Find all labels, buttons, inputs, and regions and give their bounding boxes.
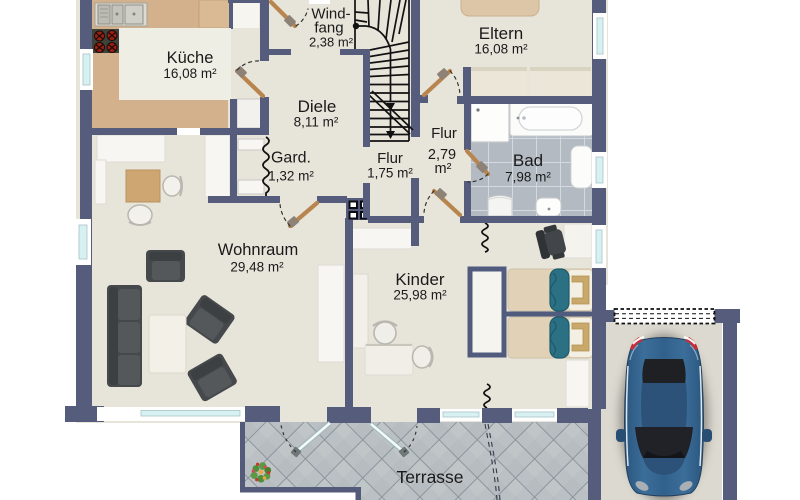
svg-text:1,75 m²: 1,75 m² xyxy=(367,166,413,181)
svg-text:Diele: Diele xyxy=(298,97,337,116)
svg-text:16,08 m²: 16,08 m² xyxy=(163,66,217,81)
svg-text:Terrasse: Terrasse xyxy=(396,467,463,487)
svg-text:8,11 m²: 8,11 m² xyxy=(294,115,339,130)
svg-text:Wohnraum: Wohnraum xyxy=(218,241,298,259)
svg-text:16,08 m²: 16,08 m² xyxy=(474,42,528,57)
svg-text:Flur: Flur xyxy=(377,150,403,167)
svg-text:Küche: Küche xyxy=(167,49,214,67)
svg-text:29,48 m²: 29,48 m² xyxy=(230,260,284,275)
svg-text:2,38 m²: 2,38 m² xyxy=(309,35,354,50)
svg-text:1,32 m²: 1,32 m² xyxy=(268,169,314,184)
svg-text:Gard.: Gard. xyxy=(271,150,311,167)
svg-text:m²: m² xyxy=(435,161,452,177)
svg-text:Flur: Flur xyxy=(431,125,457,142)
svg-text:Bad: Bad xyxy=(513,151,543,170)
svg-text:Kinder: Kinder xyxy=(395,270,444,289)
svg-text:7,98 m²: 7,98 m² xyxy=(505,170,551,185)
svg-text:25,98 m²: 25,98 m² xyxy=(393,288,447,303)
svg-text:Eltern: Eltern xyxy=(479,24,523,43)
